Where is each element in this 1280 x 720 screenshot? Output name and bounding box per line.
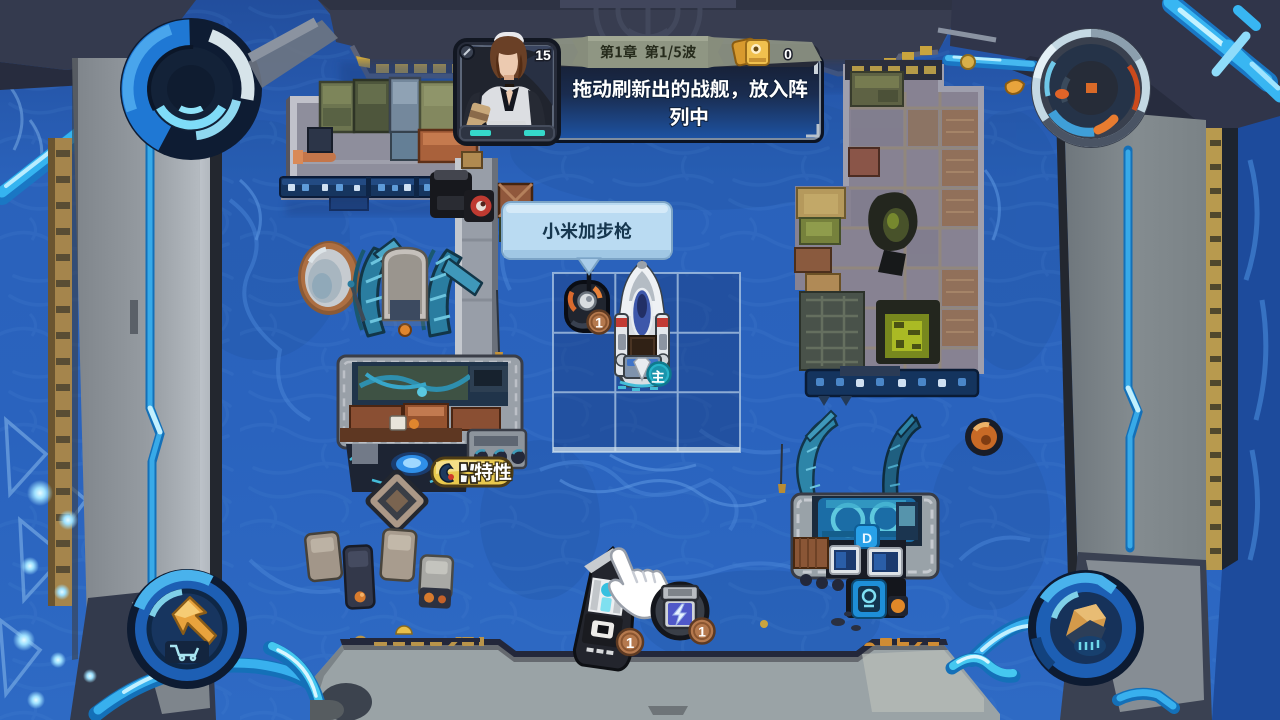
svg-text:15: 15 — [535, 47, 551, 63]
svg-text:D: D — [862, 530, 872, 546]
svg-text:1: 1 — [595, 315, 603, 331]
svg-text:1: 1 — [626, 635, 634, 652]
svg-text:1: 1 — [698, 624, 706, 640]
svg-text:0: 0 — [784, 46, 792, 62]
